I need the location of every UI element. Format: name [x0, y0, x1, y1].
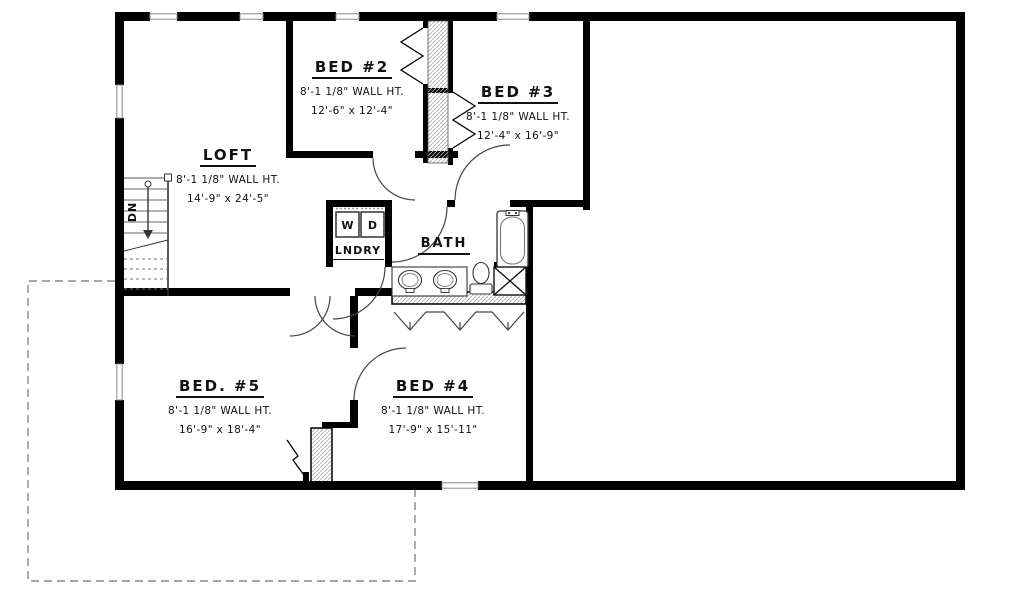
- bath-title: BATH: [418, 237, 471, 255]
- bed3-title: BED #3: [478, 84, 558, 104]
- toilet: [470, 263, 492, 295]
- loft-dimensions: 14'-9" x 24'-5": [187, 193, 269, 205]
- dryer-label: D: [368, 219, 377, 232]
- bed4-dimensions: 17'-9" x 15'-11": [388, 424, 477, 436]
- stair-treads-hidden: [124, 259, 168, 289]
- bed2-title: BED #2: [312, 59, 392, 79]
- washer-label: W: [341, 219, 353, 232]
- bed3-door-arc: [455, 145, 510, 200]
- bed2-label: BED #2 8'-1 1/8" WALL HT. 12'-6" x 12'-4…: [267, 58, 437, 118]
- loft-label: LOFT 8'-1 1/8" WALL HT. 14'-9" x 24'-5": [143, 146, 313, 206]
- bed4-closet-rod: [394, 312, 524, 330]
- bed2-dimensions: 12'-6" x 12'-4": [311, 105, 393, 117]
- bed5-dimensions: 16'-9" x 18'-4": [179, 424, 261, 436]
- bed5-door-arc-left: [290, 296, 330, 336]
- bed4-title: BED #4: [393, 378, 473, 398]
- bed4-label: BED #4 8'-1 1/8" WALL HT. 17'-9" x 15'-1…: [348, 377, 518, 437]
- bed3-label: BED #3 8'-1 1/8" WALL HT. 12'-4" x 16'-9…: [433, 83, 603, 143]
- loft-title: LOFT: [200, 147, 256, 167]
- laundry-fixtures: W D: [336, 209, 384, 238]
- window-top-4: [497, 12, 529, 22]
- bed3-wall-height: 8'-1 1/8" WALL HT.: [466, 111, 570, 123]
- window-top-3: [336, 12, 359, 22]
- bed2-wall-height: 8'-1 1/8" WALL HT.: [300, 86, 404, 98]
- laundry-label: LNDRY: [328, 240, 388, 262]
- bed4-wall-height: 8'-1 1/8" WALL HT.: [381, 405, 485, 417]
- bed2-door-arc: [373, 158, 415, 200]
- vanity-double-sink: [392, 267, 467, 296]
- bed3-dimensions: 12'-4" x 16'-9": [477, 130, 559, 142]
- bed5-label: BED. #5 8'-1 1/8" WALL HT. 16'-9" x 18'-…: [135, 377, 305, 437]
- laundry-title: LNDRY: [332, 245, 384, 260]
- window-left-bed5: [115, 364, 125, 400]
- window-bottom-bed4: [442, 481, 478, 491]
- bed5-closet-wall-hatch: [311, 428, 332, 482]
- linen-cabinet: [494, 267, 526, 295]
- bath-label: BATH: [405, 233, 483, 257]
- loft-wall-height: 8'-1 1/8" WALL HT.: [176, 174, 280, 186]
- bed5-wall-height: 8'-1 1/8" WALL HT.: [168, 405, 272, 417]
- bed5-title: BED. #5: [176, 378, 264, 398]
- window-top-1: [150, 12, 177, 22]
- floor-plan-page: DN W D: [0, 0, 1024, 599]
- bed5-door-arc-right: [315, 296, 355, 336]
- window-top-2: [240, 12, 263, 22]
- window-left-loft: [115, 85, 125, 118]
- bathtub: [497, 211, 528, 269]
- stair-break-line: [124, 240, 168, 251]
- stairs-dn-label: DN: [126, 202, 139, 222]
